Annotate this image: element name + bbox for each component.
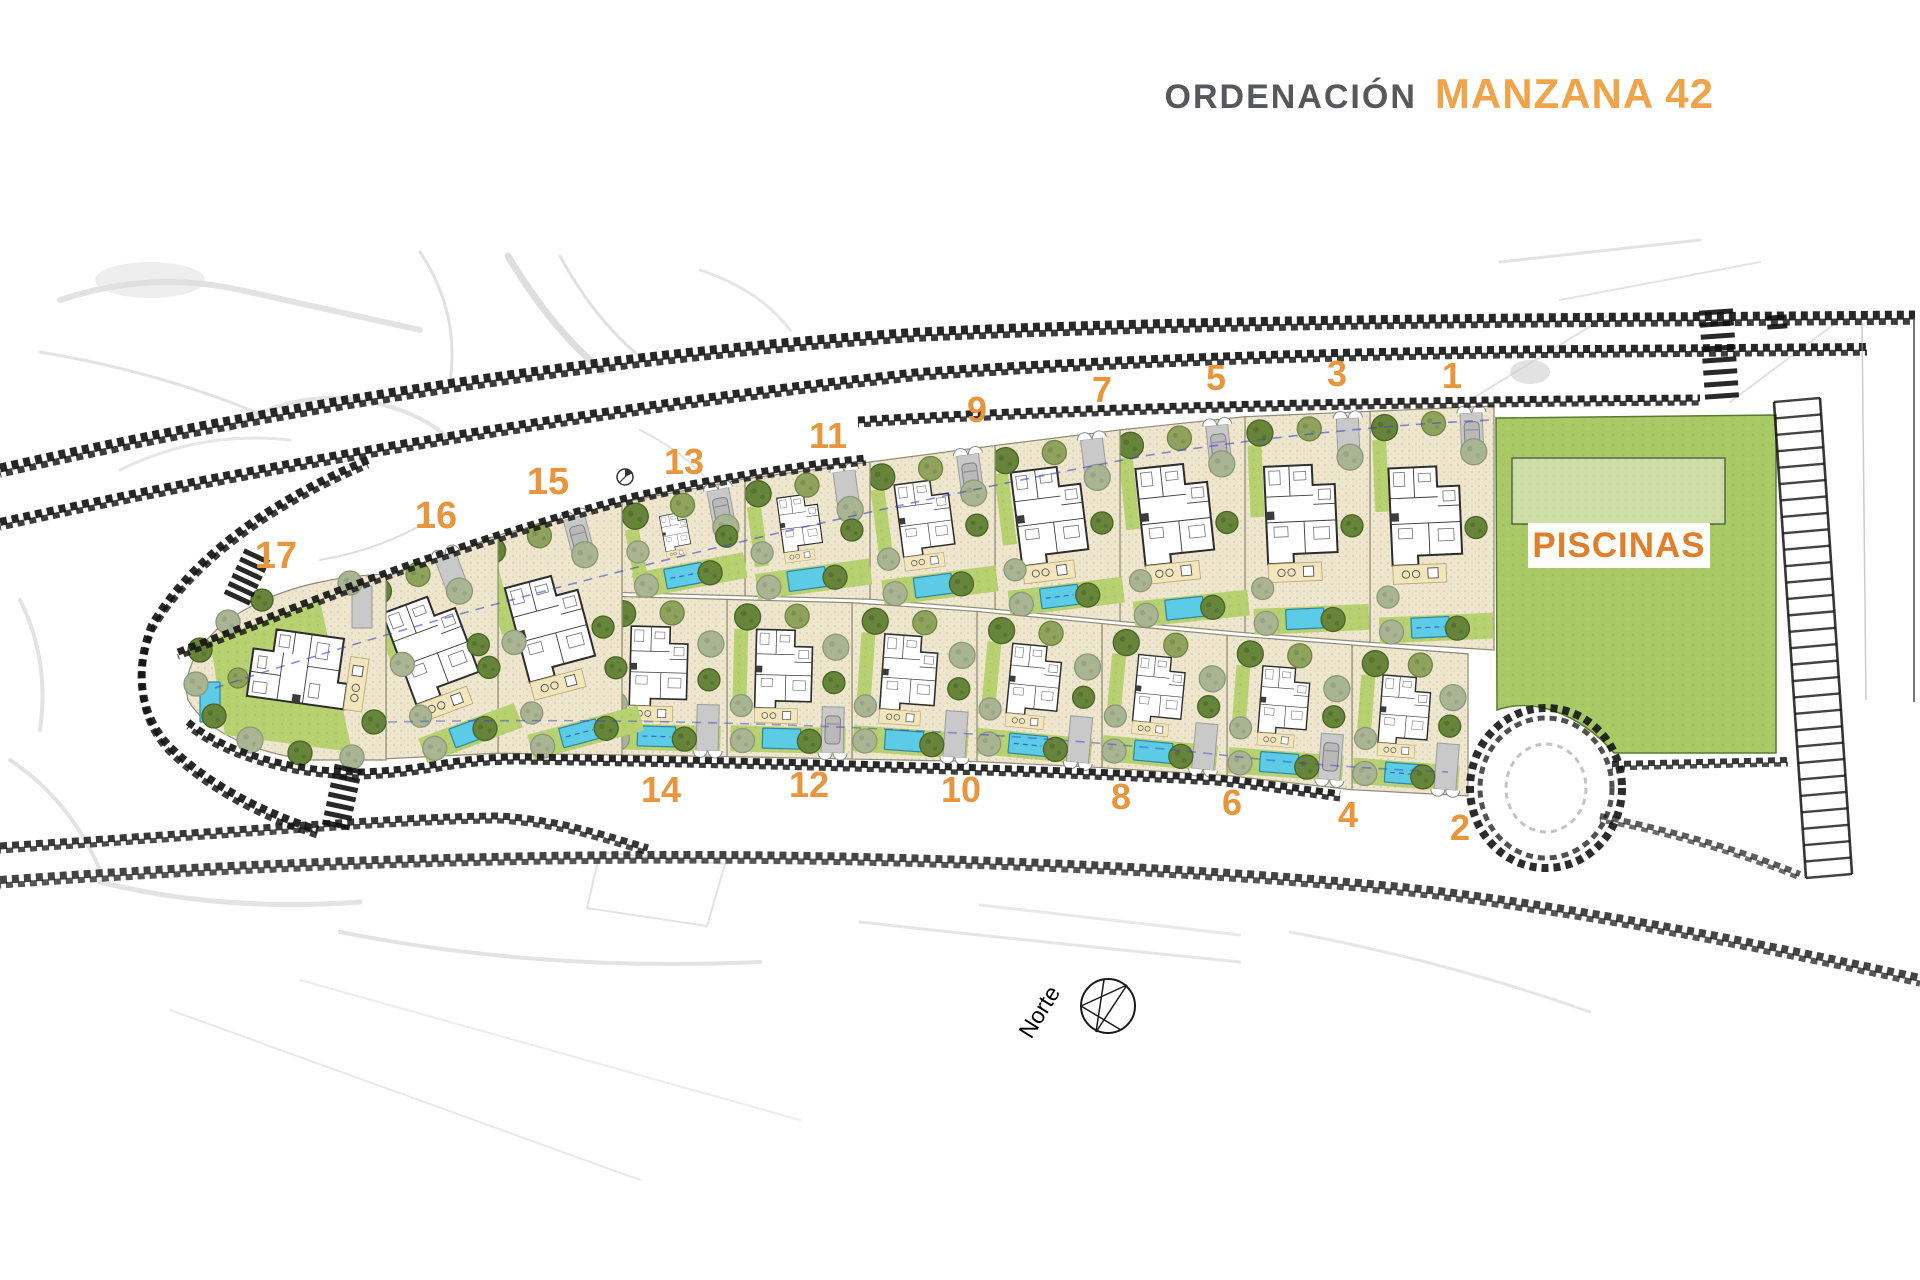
terrain-scribble <box>20 600 43 730</box>
terrace-seat <box>352 665 363 676</box>
tree-olive <box>1321 607 1346 632</box>
terrace-seat <box>1181 565 1192 576</box>
pool <box>1133 740 1173 763</box>
stair-rung <box>1775 414 1821 418</box>
terrain-scribble <box>1470 316 1607 400</box>
tree-sage <box>237 727 263 753</box>
plot-2 <box>1351 645 1471 798</box>
pool <box>913 573 953 598</box>
tree-olive <box>947 677 970 700</box>
terrace-seat <box>1303 566 1314 577</box>
stair-rung <box>1795 710 1841 714</box>
tree-olive <box>1341 514 1364 537</box>
terrain-scribble <box>340 932 760 964</box>
stair-rung <box>1786 579 1832 583</box>
tree-sage <box>823 634 850 661</box>
culdesac-loop-inner <box>1480 718 1612 858</box>
north-compass: Norte <box>1013 979 1135 1043</box>
stair-rung <box>1794 693 1840 697</box>
tree-sage <box>730 728 755 753</box>
stair-rung <box>1797 743 1843 747</box>
pool <box>1040 584 1080 609</box>
terrace-seat <box>804 552 810 558</box>
stair-rung <box>1793 677 1839 681</box>
plot-label-14: 14 <box>641 769 681 810</box>
stair-rung <box>1778 464 1824 468</box>
tree-olive <box>288 741 312 765</box>
terrain-scribble <box>508 256 603 371</box>
norte-label: Norte <box>1013 981 1065 1042</box>
pool <box>762 728 801 749</box>
stair-rung <box>1791 644 1837 648</box>
villa-stairs <box>882 669 889 676</box>
terrain-smudge <box>1510 360 1550 384</box>
villa-stairs <box>756 666 763 673</box>
tree-sage <box>184 672 208 696</box>
tree-sage <box>1254 611 1279 636</box>
plot-12 <box>727 599 852 760</box>
stair-rung <box>1776 431 1822 435</box>
tree-olive <box>672 727 697 752</box>
villa-stairs <box>899 518 906 525</box>
terrace-seat <box>1056 564 1067 575</box>
villa-stairs <box>1009 675 1015 681</box>
terrain-scribble <box>40 352 260 414</box>
pool <box>1165 596 1205 620</box>
terrace-seat <box>782 711 790 719</box>
plot-label-17: 17 <box>255 535 297 577</box>
plot-label-15: 15 <box>527 461 569 503</box>
terrace-seat <box>1155 726 1163 734</box>
terrain-scribble <box>300 980 800 1120</box>
terrain-scribble <box>1560 262 1760 300</box>
pool <box>787 567 827 592</box>
car <box>825 716 841 744</box>
tree-olive <box>1465 516 1488 539</box>
terrace-seat <box>565 674 577 686</box>
terrace-seat <box>657 709 665 717</box>
stair-rung <box>1785 562 1831 566</box>
plot-3 <box>1244 411 1372 643</box>
stair-rung <box>1799 776 1845 780</box>
terrain-scribble <box>1290 932 1590 1012</box>
plot-content <box>741 462 875 601</box>
terrace-seat <box>1281 737 1288 744</box>
stair-rung <box>1796 726 1842 730</box>
pool <box>1286 608 1325 630</box>
plot-label-5: 5 <box>1206 357 1226 398</box>
terrain-smudge <box>95 262 205 298</box>
plot-label-4: 4 <box>1338 794 1358 835</box>
terrain-scribble <box>1730 316 1845 402</box>
stair-rung <box>1789 628 1835 632</box>
stair-rung <box>1804 841 1850 845</box>
stair-rung <box>1774 398 1820 402</box>
villa-stairs <box>780 523 785 528</box>
terrace-seat <box>1428 568 1439 579</box>
terrain-scribble <box>1500 240 1700 262</box>
plot-9 <box>865 446 1001 610</box>
stair-rung <box>1784 546 1830 550</box>
garden-strip <box>732 629 748 701</box>
tree-sage <box>854 694 877 717</box>
boundary-line-right-faint <box>1862 322 1866 700</box>
pool <box>1259 752 1298 775</box>
villa-stairs <box>1260 697 1266 703</box>
plan-title: ORDENACIÓN MANZANA 42 <box>1165 70 1714 118</box>
stair-rung <box>1802 808 1848 812</box>
terrain-scribble <box>170 1010 640 1180</box>
stair-rung <box>1777 447 1823 451</box>
villa-stairs <box>1016 515 1025 524</box>
stair-rung <box>1787 595 1833 599</box>
tree-olive <box>734 604 761 631</box>
terrain-scribble <box>10 760 100 870</box>
tree-olive <box>797 729 822 754</box>
title-ordenacion: ORDENACIÓN <box>1165 78 1417 117</box>
road-hatch-line <box>1600 820 1800 878</box>
stair-rung <box>1780 480 1826 484</box>
villa-stairs <box>662 532 666 536</box>
pool <box>884 729 923 752</box>
tree-sage <box>1379 620 1404 645</box>
plot-label-2: 2 <box>1450 807 1470 848</box>
stair-rung <box>1783 529 1829 533</box>
stair-rung <box>1782 513 1828 517</box>
stair-rung <box>1803 825 1849 829</box>
tree-pale <box>785 604 810 629</box>
road-hatch-line <box>1612 760 1788 764</box>
tree-pale <box>660 601 685 626</box>
plot-label-11: 11 <box>809 415 847 456</box>
plot-17 <box>184 571 386 769</box>
terrace-seat <box>906 714 914 722</box>
villa-stairs <box>630 663 637 670</box>
stair-rung <box>1792 661 1838 665</box>
terrain-scribble <box>700 270 790 330</box>
plot-label-7: 7 <box>1092 369 1112 410</box>
terrain-scribble <box>100 882 360 905</box>
plot-10 <box>851 603 979 766</box>
tree-olive <box>251 589 273 611</box>
terrain-scribble <box>320 520 430 560</box>
tree-sage <box>340 745 364 769</box>
tree-olive <box>823 671 846 694</box>
villa-stairs <box>1135 685 1141 691</box>
communal-pool-zone <box>1512 458 1725 524</box>
terrace-seat <box>930 556 939 565</box>
plot-label-3: 3 <box>1327 353 1347 394</box>
plot-label-13: 13 <box>664 441 704 482</box>
tree-sage <box>698 631 725 658</box>
terrace-seat <box>1030 718 1038 726</box>
site-plan-page: Norte1357911131516172468101214PISCINAS O… <box>0 0 1920 1280</box>
tree-olive <box>698 669 721 692</box>
car <box>1322 742 1339 771</box>
villa-stairs <box>1140 513 1149 522</box>
stair-rung <box>1800 792 1846 796</box>
site-plan-drawing: Norte1357911131516172468101214PISCINAS <box>0 0 1920 1280</box>
stair-rung <box>1788 611 1834 615</box>
survey-point <box>617 469 633 485</box>
tree-olive <box>362 710 386 734</box>
stair-rung <box>1798 759 1844 763</box>
tree-pale <box>228 668 248 688</box>
piscinas-area <box>1496 415 1776 753</box>
plot-label-9: 9 <box>967 389 987 430</box>
plot-label-12: 12 <box>789 764 829 805</box>
title-manzana-42: MANZANA 42 <box>1435 70 1714 118</box>
culdesac-island <box>1506 744 1586 832</box>
tree-sage <box>1377 586 1400 609</box>
stair-rung <box>1806 874 1852 878</box>
stair-rung <box>1781 496 1827 500</box>
tree-pale <box>1297 416 1322 441</box>
tree-sage <box>1336 444 1363 471</box>
plot-6 <box>1099 624 1230 778</box>
road-hatch-line <box>0 855 1920 978</box>
villa-stairs <box>291 694 300 703</box>
terrain-scribble <box>420 252 452 382</box>
tree-olive <box>1445 616 1470 641</box>
villa-stairs <box>1266 512 1275 521</box>
stair-rung <box>1805 858 1851 862</box>
plot-label-6: 6 <box>1222 782 1242 823</box>
villa-stairs <box>1390 513 1399 522</box>
compass-circle <box>1081 979 1135 1033</box>
terrace-seat <box>679 550 683 554</box>
tree-olive <box>202 704 226 728</box>
terrace-seat <box>1401 747 1409 755</box>
plot-label-1: 1 <box>1442 355 1462 396</box>
plot-1 <box>1369 405 1496 650</box>
plot-content <box>865 446 1001 608</box>
tree-sage <box>1460 438 1487 465</box>
plot-label-8: 8 <box>1111 776 1131 817</box>
terrain-scribble <box>980 905 1240 935</box>
plot-4 <box>1226 635 1354 789</box>
piscinas-park-layer <box>1496 415 1776 753</box>
tree-sage <box>730 694 753 717</box>
plot-5 <box>1114 417 1252 633</box>
stairs-path <box>1774 398 1852 878</box>
plot-11 <box>741 462 875 601</box>
piscinas-label: PISCINAS <box>1532 526 1705 565</box>
villa-stairs <box>1380 706 1386 712</box>
plot-8 <box>974 611 1105 771</box>
plot-7 <box>988 430 1127 621</box>
plot-label-16: 16 <box>415 495 457 537</box>
tree-sage <box>1251 577 1274 600</box>
tree-olive <box>1246 419 1273 446</box>
plot-label-10: 10 <box>941 769 981 810</box>
